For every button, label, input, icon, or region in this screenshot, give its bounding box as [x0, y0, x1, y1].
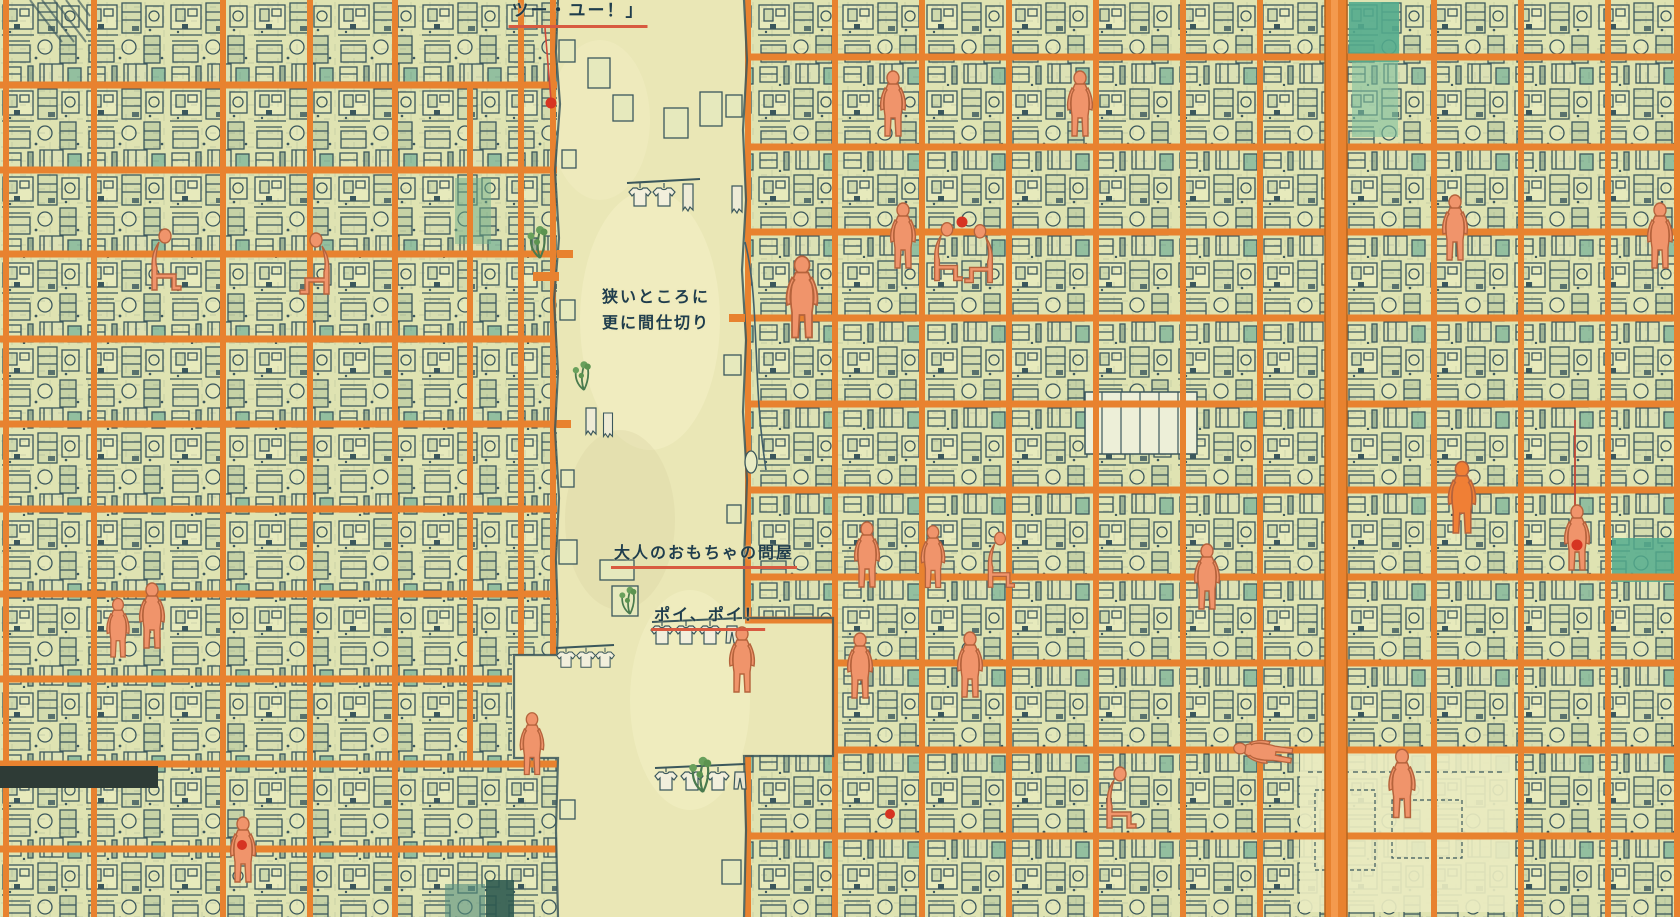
teal-patch	[445, 884, 485, 917]
annotation-partition-note: 狭いところに 更に間仕切り	[602, 284, 710, 336]
laundry-towel	[732, 186, 742, 213]
thick-structural-column	[1325, 0, 1347, 917]
annotation-adult-toy-wholesaler: 大人のおもちゃの問屋	[611, 543, 797, 569]
annotation-partition-line2: 更に間仕切り	[602, 310, 710, 336]
laundry-towel	[604, 413, 613, 437]
cross-section-illustration	[0, 0, 1680, 917]
laundry-towel	[586, 408, 596, 435]
teal-patch	[1352, 62, 1398, 137]
laundry-towel	[683, 184, 693, 211]
illustration-canvas: ツー・ユー！」 狭いところに 更に間仕切り 大人のおもちゃの問屋 ポイ、ポイ！	[0, 0, 1680, 917]
annotation-poi-poi: ポイ、ポイ！	[651, 605, 765, 631]
teal-patch	[486, 880, 514, 917]
building-left	[0, 0, 560, 917]
red-marker-dot	[237, 840, 247, 850]
annotation-quote-top: ツー・ユー！」	[509, 1, 648, 28]
annotation-partition-line1: 狭いところに	[602, 284, 710, 310]
red-marker-dot	[957, 217, 968, 228]
hanging-bottle	[745, 451, 757, 473]
dark-beam	[0, 766, 158, 788]
red-marker-dot	[885, 809, 895, 819]
red-marker-dot	[1572, 540, 1583, 551]
red-marker-dot	[546, 98, 557, 109]
building-right	[742, 0, 1680, 917]
teal-patch	[1349, 2, 1399, 62]
